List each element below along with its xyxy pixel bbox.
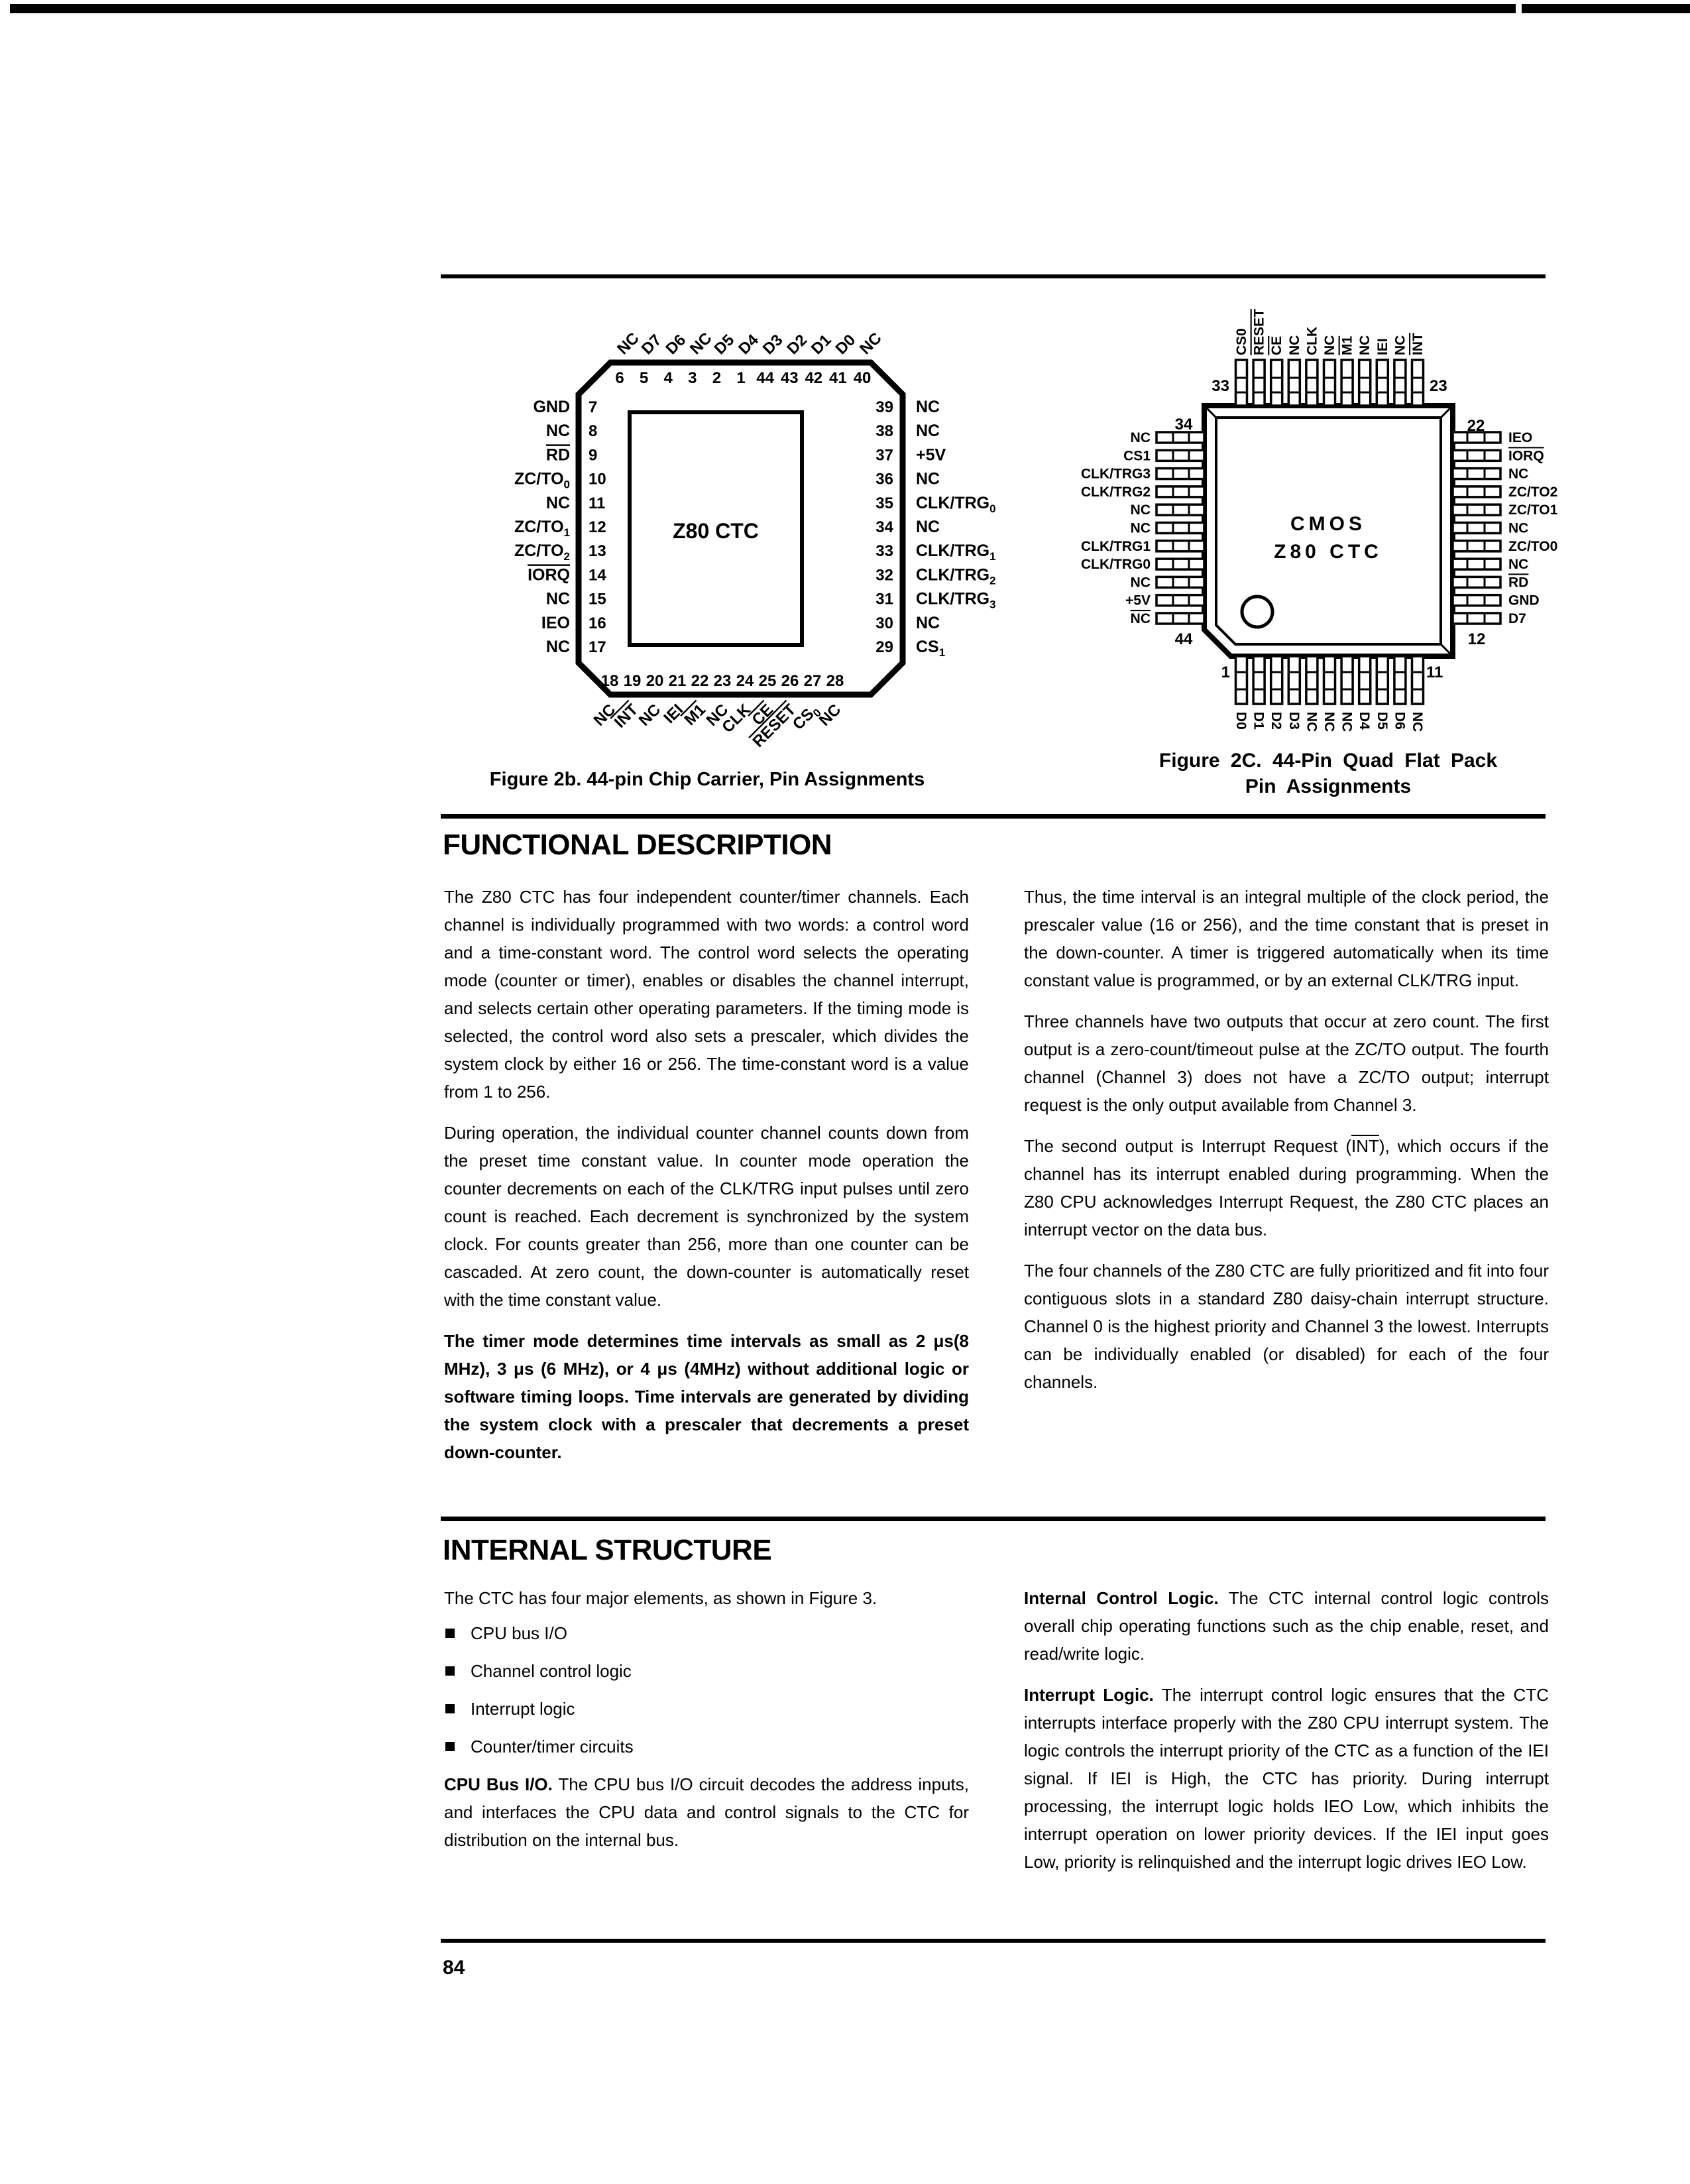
svg-text:NC: NC (1508, 557, 1528, 572)
figure-2c-caption-line2: Pin Assignments (1245, 776, 1411, 797)
svg-text:D4: D4 (1357, 712, 1372, 730)
svg-text:23: 23 (1430, 377, 1447, 395)
svg-text:NC: NC (1508, 467, 1528, 482)
svg-text:NC: NC (614, 329, 643, 359)
svg-text:RESET: RESET (1252, 309, 1267, 355)
svg-text:D7: D7 (1508, 611, 1526, 626)
svg-text:14: 14 (589, 566, 606, 584)
svg-text:31: 31 (875, 591, 893, 608)
figure-2c-caption-line1: Figure 2C. 44-Pin Quad Flat Pack (1159, 750, 1497, 772)
svg-text:CLK/TRG0: CLK/TRG0 (1081, 557, 1151, 572)
figure-2c-quad-flat-pack: CMOSZ80 CTCCS0RESETCENCCLKNCM1NCIEINCINT… (1081, 309, 1558, 797)
paragraph: The timer mode determines time intervals… (444, 1327, 969, 1466)
svg-text:ZC/TO2: ZC/TO2 (1508, 485, 1557, 500)
svg-text:D3: D3 (760, 331, 787, 358)
svg-text:1: 1 (1221, 663, 1230, 681)
svg-text:11: 11 (1426, 663, 1443, 681)
svg-text:D5: D5 (711, 331, 738, 358)
svg-text:CLK/TRG0: CLK/TRG0 (916, 494, 996, 515)
svg-text:D4: D4 (735, 331, 762, 358)
cpu-bus-io-paragraph: CPU Bus I/O. The CPU bus I/O circuit dec… (444, 1770, 969, 1854)
svg-text:NC: NC (1287, 335, 1302, 355)
svg-text:16: 16 (589, 614, 606, 632)
svg-text:26: 26 (781, 672, 799, 690)
svg-text:NC: NC (1322, 712, 1337, 732)
svg-text:8: 8 (589, 422, 597, 440)
svg-text:44: 44 (756, 369, 774, 387)
svg-text:GND: GND (1508, 593, 1540, 608)
svg-text:+5V: +5V (1125, 593, 1151, 608)
bullet-item: CPU bus I/O (444, 1619, 969, 1647)
svg-text:ZC/TO1: ZC/TO1 (1508, 502, 1558, 518)
svg-text:2: 2 (712, 369, 721, 387)
svg-text:NC: NC (636, 701, 665, 730)
svg-text:34: 34 (1175, 416, 1193, 433)
svg-text:NC: NC (856, 329, 885, 359)
paragraph: Interrupt Logic. The interrupt control l… (1024, 1681, 1549, 1876)
svg-text:12: 12 (589, 518, 606, 536)
svg-text:NC: NC (1508, 521, 1528, 536)
svg-text:28: 28 (826, 672, 844, 690)
svg-text:9: 9 (589, 446, 597, 464)
svg-text:NC: NC (1322, 335, 1337, 355)
svg-text:19: 19 (624, 672, 642, 690)
svg-text:CLK/TRG1: CLK/TRG1 (916, 542, 996, 563)
svg-text:NC: NC (1131, 521, 1151, 536)
svg-text:24: 24 (736, 672, 754, 690)
paragraph: During operation, the individual counter… (444, 1119, 969, 1314)
svg-text:3: 3 (688, 369, 697, 387)
functional-left-column: The Z80 CTC has four independent counter… (444, 883, 969, 1479)
figure-2b-chip-carrier: Z80 CTC6543214443424140NCD7D6NCD5D4D3D2D… (490, 329, 996, 790)
bullet-label: Channel control logic (471, 1657, 632, 1685)
svg-text:NC: NC (1410, 712, 1425, 732)
svg-text:NC: NC (1357, 335, 1373, 355)
svg-text:INT: INT (1410, 333, 1426, 355)
svg-text:D0: D0 (832, 331, 860, 358)
paragraph: CPU Bus I/O. The CPU bus I/O circuit dec… (444, 1770, 969, 1854)
svg-text:D5: D5 (1375, 712, 1390, 730)
svg-text:22: 22 (691, 672, 709, 690)
svg-text:43: 43 (781, 369, 799, 387)
svg-text:18: 18 (601, 672, 619, 690)
svg-text:5: 5 (640, 369, 648, 387)
svg-text:D6: D6 (1392, 712, 1407, 730)
internal-left-column: The CTC has four major elements, as show… (444, 1584, 969, 1867)
svg-text:NC: NC (546, 590, 570, 608)
bullet-square-icon (445, 1704, 455, 1713)
svg-text:13: 13 (589, 542, 606, 560)
svg-text:CLK: CLK (1304, 327, 1320, 355)
svg-text:IEI: IEI (1375, 338, 1390, 355)
svg-text:32: 32 (875, 566, 893, 584)
svg-text:NC: NC (916, 470, 940, 489)
bullet-square-icon (445, 1666, 455, 1676)
paragraph: Internal Control Logic. The CTC internal… (1024, 1584, 1549, 1668)
svg-text:D7: D7 (638, 331, 665, 358)
svg-text:NC: NC (1131, 430, 1151, 445)
svg-text:35: 35 (875, 494, 893, 512)
svg-text:IEO: IEO (1508, 430, 1532, 445)
internal-right-column: Internal Control Logic. The CTC internal… (1024, 1584, 1549, 1889)
svg-text:36: 36 (875, 471, 893, 489)
svg-text:D1: D1 (808, 331, 835, 358)
svg-text:NC: NC (816, 701, 845, 730)
svg-text:D0: D0 (1233, 712, 1249, 730)
svg-text:CS1: CS1 (1123, 448, 1151, 463)
svg-text:NC: NC (1131, 575, 1151, 590)
paragraph: The four channels of the Z80 CTC are ful… (1024, 1257, 1549, 1396)
svg-text:NC: NC (916, 614, 940, 632)
bullet-square-icon (445, 1742, 455, 1751)
svg-text:CLK/TRG2: CLK/TRG2 (916, 565, 996, 587)
svg-text:M1: M1 (1340, 336, 1355, 355)
bullet-item: Counter/timer circuits (444, 1733, 969, 1760)
paragraph: The Z80 CTC has four independent counter… (444, 883, 969, 1106)
svg-text:CLK/TRG1: CLK/TRG1 (1081, 539, 1151, 554)
functional-description-heading: FUNCTIONAL DESCRIPTION (443, 829, 832, 862)
bullet-item: Channel control logic (444, 1657, 969, 1685)
svg-text:34: 34 (875, 518, 893, 536)
svg-text:15: 15 (589, 591, 606, 608)
svg-text:39: 39 (875, 398, 893, 416)
svg-text:23: 23 (714, 672, 732, 690)
bullet-label: Interrupt logic (471, 1695, 575, 1723)
svg-text:4: 4 (664, 369, 673, 387)
functional-right-column: Thus, the time interval is an integral m… (1024, 883, 1549, 1409)
svg-text:ZC/TO0: ZC/TO0 (1508, 539, 1557, 554)
svg-text:6: 6 (615, 369, 624, 387)
svg-text:NC: NC (916, 518, 940, 536)
bullet-square-icon (445, 1629, 455, 1638)
svg-text:CS0: CS0 (1234, 328, 1249, 355)
svg-text:CE: CE (1269, 336, 1284, 355)
page-number: 84 (443, 1957, 465, 1979)
svg-text:CLK/TRG2: CLK/TRG2 (1081, 485, 1151, 500)
svg-text:NC: NC (546, 638, 570, 656)
svg-text:+5V: +5V (916, 445, 946, 464)
internal-structure-heading: INTERNAL STRUCTURE (443, 1534, 771, 1567)
internal-intro: The CTC has four major elements, as show… (444, 1584, 969, 1612)
svg-text:41: 41 (829, 369, 847, 387)
bullet-item: Interrupt logic (444, 1695, 969, 1723)
svg-text:NC: NC (1304, 712, 1319, 732)
svg-text:7: 7 (589, 398, 597, 416)
svg-text:D6: D6 (662, 331, 689, 358)
figure-2b-caption: Figure 2b. 44-pin Chip Carrier, Pin Assi… (490, 769, 925, 790)
svg-text:D2: D2 (1268, 712, 1284, 730)
svg-text:21: 21 (669, 672, 687, 690)
svg-text:CLK/TRG3: CLK/TRG3 (916, 590, 996, 611)
svg-text:NC: NC (1392, 335, 1408, 355)
svg-text:RD: RD (1508, 575, 1528, 590)
svg-text:IORQ: IORQ (528, 565, 570, 584)
svg-text:12: 12 (1468, 630, 1486, 648)
svg-text:ZC/TO2: ZC/TO2 (514, 542, 570, 563)
paragraph: The second output is Interrupt Request (… (1024, 1132, 1549, 1243)
paragraph: Three channels have two outputs that occ… (1024, 1007, 1549, 1119)
svg-text:NC: NC (546, 494, 570, 512)
svg-text:38: 38 (875, 422, 893, 440)
datasheet-page: Z80 CTC6543214443424140NCD7D6NCD5D4D3D2D… (0, 0, 1690, 2184)
svg-text:30: 30 (875, 614, 893, 632)
svg-text:ZC/TO0: ZC/TO0 (514, 470, 570, 491)
svg-text:20: 20 (646, 672, 664, 690)
paragraph: Thus, the time interval is an integral m… (1024, 883, 1549, 994)
svg-text:NC: NC (1339, 712, 1355, 732)
svg-text:25: 25 (759, 672, 777, 690)
svg-text:44: 44 (1175, 630, 1193, 648)
svg-text:IEO: IEO (541, 614, 570, 632)
svg-text:Z80 CTC: Z80 CTC (673, 519, 759, 543)
bullet-label: Counter/timer circuits (471, 1733, 634, 1760)
svg-text:RD: RD (546, 445, 570, 464)
svg-text:22: 22 (1467, 417, 1485, 435)
svg-text:NC: NC (1131, 502, 1151, 518)
svg-text:40: 40 (854, 369, 872, 387)
svg-text:NC: NC (916, 422, 940, 440)
svg-text:11: 11 (589, 494, 605, 512)
svg-text:42: 42 (805, 369, 822, 387)
svg-text:IORQ: IORQ (1508, 448, 1544, 463)
svg-text:29: 29 (875, 638, 893, 656)
svg-text:27: 27 (804, 672, 822, 690)
svg-text:D3: D3 (1286, 712, 1302, 730)
svg-text:GND: GND (533, 398, 570, 416)
svg-text:NC: NC (1131, 611, 1151, 626)
svg-text:10: 10 (589, 471, 606, 489)
svg-text:1: 1 (736, 369, 745, 387)
svg-text:NC: NC (916, 398, 940, 416)
svg-text:CMOS: CMOS (1290, 513, 1366, 535)
svg-text:Z80 CTC: Z80 CTC (1274, 541, 1382, 563)
svg-text:CLK/TRG3: CLK/TRG3 (1081, 467, 1151, 482)
bullet-label: CPU bus I/O (471, 1619, 567, 1647)
svg-text:37: 37 (875, 446, 893, 464)
svg-text:NC: NC (546, 422, 570, 440)
element-bullet-list: CPU bus I/OChannel control logicInterrup… (444, 1619, 969, 1760)
svg-text:17: 17 (589, 638, 606, 656)
svg-text:CS1: CS1 (916, 638, 945, 659)
svg-text:D1: D1 (1251, 712, 1267, 730)
svg-text:33: 33 (1211, 377, 1229, 395)
svg-text:NC: NC (687, 329, 716, 359)
svg-text:ZC/TO1: ZC/TO1 (514, 518, 570, 539)
svg-text:33: 33 (875, 542, 893, 560)
svg-text:D2: D2 (783, 331, 811, 358)
